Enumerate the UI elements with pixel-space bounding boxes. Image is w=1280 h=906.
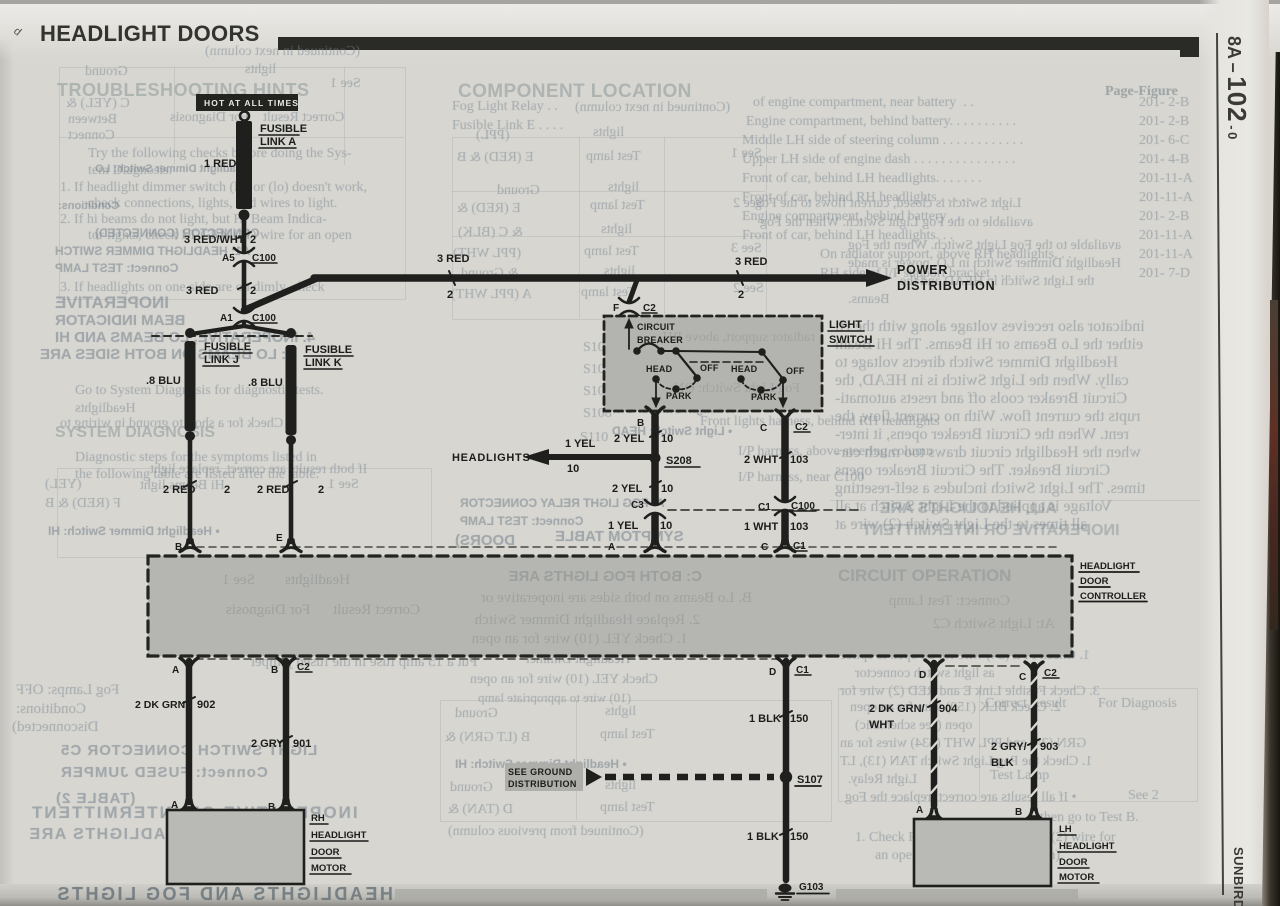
svg-text:G103: G103 — [799, 882, 824, 893]
svg-text:10: 10 — [660, 520, 672, 532]
svg-text:.8 BLU: .8 BLU — [146, 375, 181, 387]
svg-text:.8 BLU: .8 BLU — [248, 377, 283, 389]
svg-text:PARK: PARK — [666, 391, 692, 401]
svg-text:2: 2 — [318, 484, 324, 496]
svg-text:DOOR: DOOR — [1080, 576, 1109, 587]
svg-text:S107: S107 — [797, 774, 823, 786]
svg-text:DOOR: DOOR — [311, 847, 340, 858]
svg-text:2 RED: 2 RED — [163, 484, 195, 496]
svg-text:A1: A1 — [220, 313, 233, 324]
svg-text:D: D — [769, 667, 776, 678]
svg-text:2: 2 — [447, 289, 453, 301]
svg-text:C: C — [1019, 672, 1026, 683]
svg-text:SEE GROUND: SEE GROUND — [508, 767, 573, 777]
svg-text:At: Light Switch C2: At: Light Switch C2 — [933, 616, 1055, 632]
svg-text:FUSIBLE: FUSIBLE — [204, 341, 251, 353]
svg-text:LIGHT: LIGHT — [829, 319, 862, 331]
svg-text:1 BLK: 1 BLK — [749, 713, 781, 725]
svg-text:FUSIBLE: FUSIBLE — [305, 344, 352, 356]
svg-text:HOT AT ALL TIMES: HOT AT ALL TIMES — [204, 98, 299, 108]
svg-text:D: D — [919, 670, 926, 681]
svg-text:C: C — [760, 423, 767, 434]
svg-text:2 RED: 2 RED — [257, 484, 289, 496]
svg-text:903: 903 — [1040, 741, 1058, 753]
svg-text:2: 2 — [250, 285, 256, 297]
svg-text:1 RED: 1 RED — [204, 158, 236, 170]
svg-text:10: 10 — [661, 433, 673, 445]
svg-text:LINK A: LINK A — [260, 136, 296, 148]
svg-text:902: 902 — [197, 699, 215, 711]
svg-text:3 RED: 3 RED — [735, 256, 767, 268]
svg-text:DISTRIBUTION: DISTRIBUTION — [508, 779, 577, 789]
svg-text:HEAD: HEAD — [646, 364, 673, 374]
svg-text:3 RED/WHT: 3 RED/WHT — [184, 234, 245, 246]
svg-text:2 GRY: 2 GRY — [251, 738, 284, 750]
svg-text:E: E — [276, 533, 283, 544]
svg-text:B: B — [1015, 807, 1022, 818]
svg-text:LINK J: LINK J — [204, 354, 239, 366]
svg-text:1 WHT: 1 WHT — [744, 521, 779, 533]
svg-text:2: 2 — [250, 234, 256, 246]
svg-text:CONTROLLER: CONTROLLER — [1080, 591, 1146, 602]
svg-text:BREAKER: BREAKER — [637, 335, 683, 345]
svg-text:CIRCUIT OPERATION: CIRCUIT OPERATION — [838, 566, 1011, 585]
svg-text:B: B — [271, 665, 278, 676]
svg-text:A: A — [608, 542, 615, 553]
svg-text:radiator support, above RH: radiator support, above RH — [663, 330, 815, 345]
svg-text:BLK: BLK — [991, 757, 1014, 769]
svg-text:DOOR: DOOR — [1059, 857, 1088, 868]
svg-text:HEADLIGHT: HEADLIGHT — [1059, 841, 1115, 852]
svg-text:DISTRIBUTION: DISTRIBUTION — [897, 279, 996, 293]
svg-text:C: C — [761, 542, 768, 553]
svg-text:1. Check YEL (10) wire for an: 1. Check YEL (10) wire for an open — [471, 631, 688, 647]
svg-text:HEADLIGHTS: HEADLIGHTS — [452, 452, 531, 464]
svg-text:901: 901 — [293, 738, 311, 750]
svg-text:103: 103 — [790, 454, 808, 466]
svg-text:1 BLK: 1 BLK — [747, 831, 779, 843]
svg-text:2 YEL: 2 YEL — [614, 433, 645, 445]
svg-text:OFF: OFF — [700, 363, 719, 373]
svg-text:CIRCUIT: CIRCUIT — [637, 322, 675, 332]
svg-text:10: 10 — [567, 463, 579, 475]
svg-text:FUSIBLE: FUSIBLE — [260, 123, 307, 135]
svg-text:B: B — [637, 418, 644, 429]
svg-text:Connect: Test Lamp: Connect: Test Lamp — [889, 593, 1010, 609]
svg-text:C: BOTH FOG LIGHTS ARE: C: BOTH FOG LIGHTS ARE — [508, 568, 702, 585]
svg-text:SWITCH: SWITCH — [829, 334, 872, 346]
svg-text:2 YEL: 2 YEL — [612, 483, 643, 495]
svg-text:1 YEL: 1 YEL — [608, 520, 639, 532]
svg-text:A: A — [916, 805, 923, 816]
svg-text:2 WHT: 2 WHT — [744, 454, 779, 466]
svg-text:1 YEL: 1 YEL — [565, 438, 596, 450]
svg-text:OFF: OFF — [786, 366, 805, 376]
svg-text:10: 10 — [661, 483, 673, 495]
svg-text:Headlights See 1: Headlights See 1 — [222, 572, 350, 588]
svg-text:150: 150 — [790, 713, 808, 725]
svg-text:LINK K: LINK K — [305, 357, 342, 369]
svg-text:WHT: WHT — [869, 719, 894, 731]
svg-text:F: F — [613, 303, 619, 314]
svg-text:C1: C1 — [758, 502, 771, 513]
svg-text:HEADLIGHT: HEADLIGHT — [311, 830, 367, 841]
svg-text:MOTOR: MOTOR — [311, 863, 346, 874]
svg-text:2 GRY/: 2 GRY/ — [991, 741, 1027, 753]
svg-text:RH: RH — [311, 813, 325, 824]
svg-text:150: 150 — [790, 831, 808, 843]
svg-text:A5: A5 — [222, 253, 235, 264]
svg-text:3 RED: 3 RED — [437, 253, 469, 265]
svg-text:HEADLIGHT: HEADLIGHT — [1080, 561, 1136, 572]
svg-text:2 DK GRN: 2 DK GRN — [135, 699, 185, 711]
svg-text:2: 2 — [224, 484, 230, 496]
svg-text:2: 2 — [738, 289, 744, 301]
svg-text:2. Replace Headlight Dimmer Sw: 2. Replace Headlight Dimmer Switch — [474, 612, 700, 628]
svg-text:904: 904 — [939, 703, 958, 715]
svg-text:C3: C3 — [631, 500, 644, 511]
svg-text:LH: LH — [1059, 824, 1072, 835]
svg-text:2 DK GRN/: 2 DK GRN/ — [869, 703, 925, 715]
svg-text:MOTOR: MOTOR — [1059, 872, 1094, 883]
svg-text:HEAD: HEAD — [731, 364, 758, 374]
svg-text:103: 103 — [790, 521, 808, 533]
svg-text:POWER: POWER — [897, 263, 948, 277]
svg-text:Correct Result For Diagno: Correct Result For Diagnosis — [226, 602, 420, 618]
svg-text:PARK: PARK — [751, 392, 777, 402]
svg-text:S208: S208 — [666, 455, 692, 467]
svg-text:A: A — [172, 665, 179, 676]
svg-text:3 RED: 3 RED — [186, 285, 218, 297]
svg-text:B. Lo Beams on both sides are: B. Lo Beams on both sides are inoperativ… — [481, 590, 752, 606]
